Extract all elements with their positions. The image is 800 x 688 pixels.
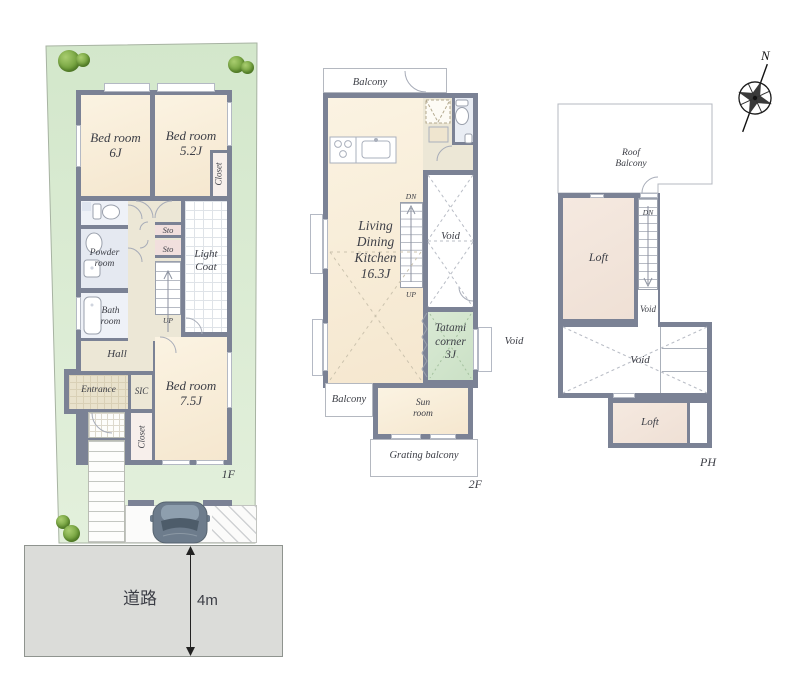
f2-sun-room: [378, 388, 468, 434]
f2-tatami-corner: [428, 312, 473, 380]
f1-bay-window-left: [104, 83, 150, 92]
f1-corridor: [128, 201, 155, 341]
f2-wall-hallway-void: [423, 170, 473, 175]
ph-side-strip: [690, 403, 707, 443]
tree-top-right-2: [241, 61, 254, 74]
f1-light-coat: [185, 201, 227, 332]
f1-driveway-hatch: [212, 506, 256, 542]
f1-storage-lower: [155, 240, 181, 258]
f1-sic: [131, 375, 152, 409]
f1-porch: [88, 412, 125, 438]
f1-entrance: [69, 375, 128, 409]
f1-closet52-label: Closet: [210, 152, 227, 196]
road: [24, 545, 283, 657]
f2-toilet-room: [452, 98, 473, 145]
f1-window-bath: [76, 297, 81, 330]
ph-window-top: [590, 194, 604, 198]
f1-bedroom75: [155, 337, 227, 460]
f2-window-tatami: [473, 329, 478, 370]
ph-loft-lower: [613, 403, 687, 443]
f2-wall-ldk-void: [423, 175, 428, 315]
f1-window-south2: [196, 460, 224, 465]
f2-bay-window-tatami: [478, 327, 492, 372]
ph-stairwell-void: [638, 290, 658, 327]
ph-roof-door-gap: [640, 193, 658, 198]
f1-exterior-steps: [88, 440, 125, 543]
f1-bath-room: [81, 293, 128, 338]
ph-void-step2: [662, 371, 707, 372]
f1-powder-room: [81, 229, 128, 288]
ph-void-divider: [660, 327, 661, 393]
f1-wc: [81, 201, 128, 225]
f2-balcony-top: [323, 68, 447, 93]
f1-bay-window-right: [157, 83, 215, 92]
f1-gate-post-left: [128, 500, 154, 506]
f2-bay-window-left2: [312, 319, 323, 376]
ph-staircase: [638, 198, 658, 290]
f1-window-bedroom52: [227, 102, 232, 146]
ph-loft-door-gap: [613, 393, 635, 398]
ph-void-center: [563, 327, 707, 393]
f2-void: [428, 175, 473, 307]
f1-window-south1: [162, 460, 190, 465]
f1-storage-upper: [155, 222, 181, 238]
f1-window-bedroom6: [76, 125, 81, 167]
f1-bedroom6: [81, 95, 150, 196]
f1-gate-post-right: [203, 500, 232, 506]
f2-staircase: [400, 202, 423, 288]
ph-void-step1: [662, 348, 707, 349]
tree-top-left-2: [76, 53, 90, 67]
f2-balcony-bottom: [325, 383, 373, 417]
f2-bay-window-left1: [310, 214, 323, 274]
f2-grating-balcony: [370, 439, 478, 477]
f1-closet75-label: Closet: [131, 413, 152, 460]
f1-window-bedroom75: [227, 352, 232, 408]
f2-window-sunroom2: [430, 434, 456, 439]
f2-window-sunroom1: [391, 434, 421, 439]
floor-plan-page: Bed room 6J Bed room 5.2J Closet Powder …: [0, 0, 800, 688]
tree-bottom-left-2: [63, 525, 80, 542]
f1-staircase: [155, 261, 181, 315]
ph-roof-balcony-outline: [558, 104, 712, 193]
ph-loft-upper: [563, 198, 634, 319]
f2-window-left1: [323, 219, 328, 269]
f2-window-left2: [323, 323, 328, 371]
f1-hall: [81, 341, 153, 371]
